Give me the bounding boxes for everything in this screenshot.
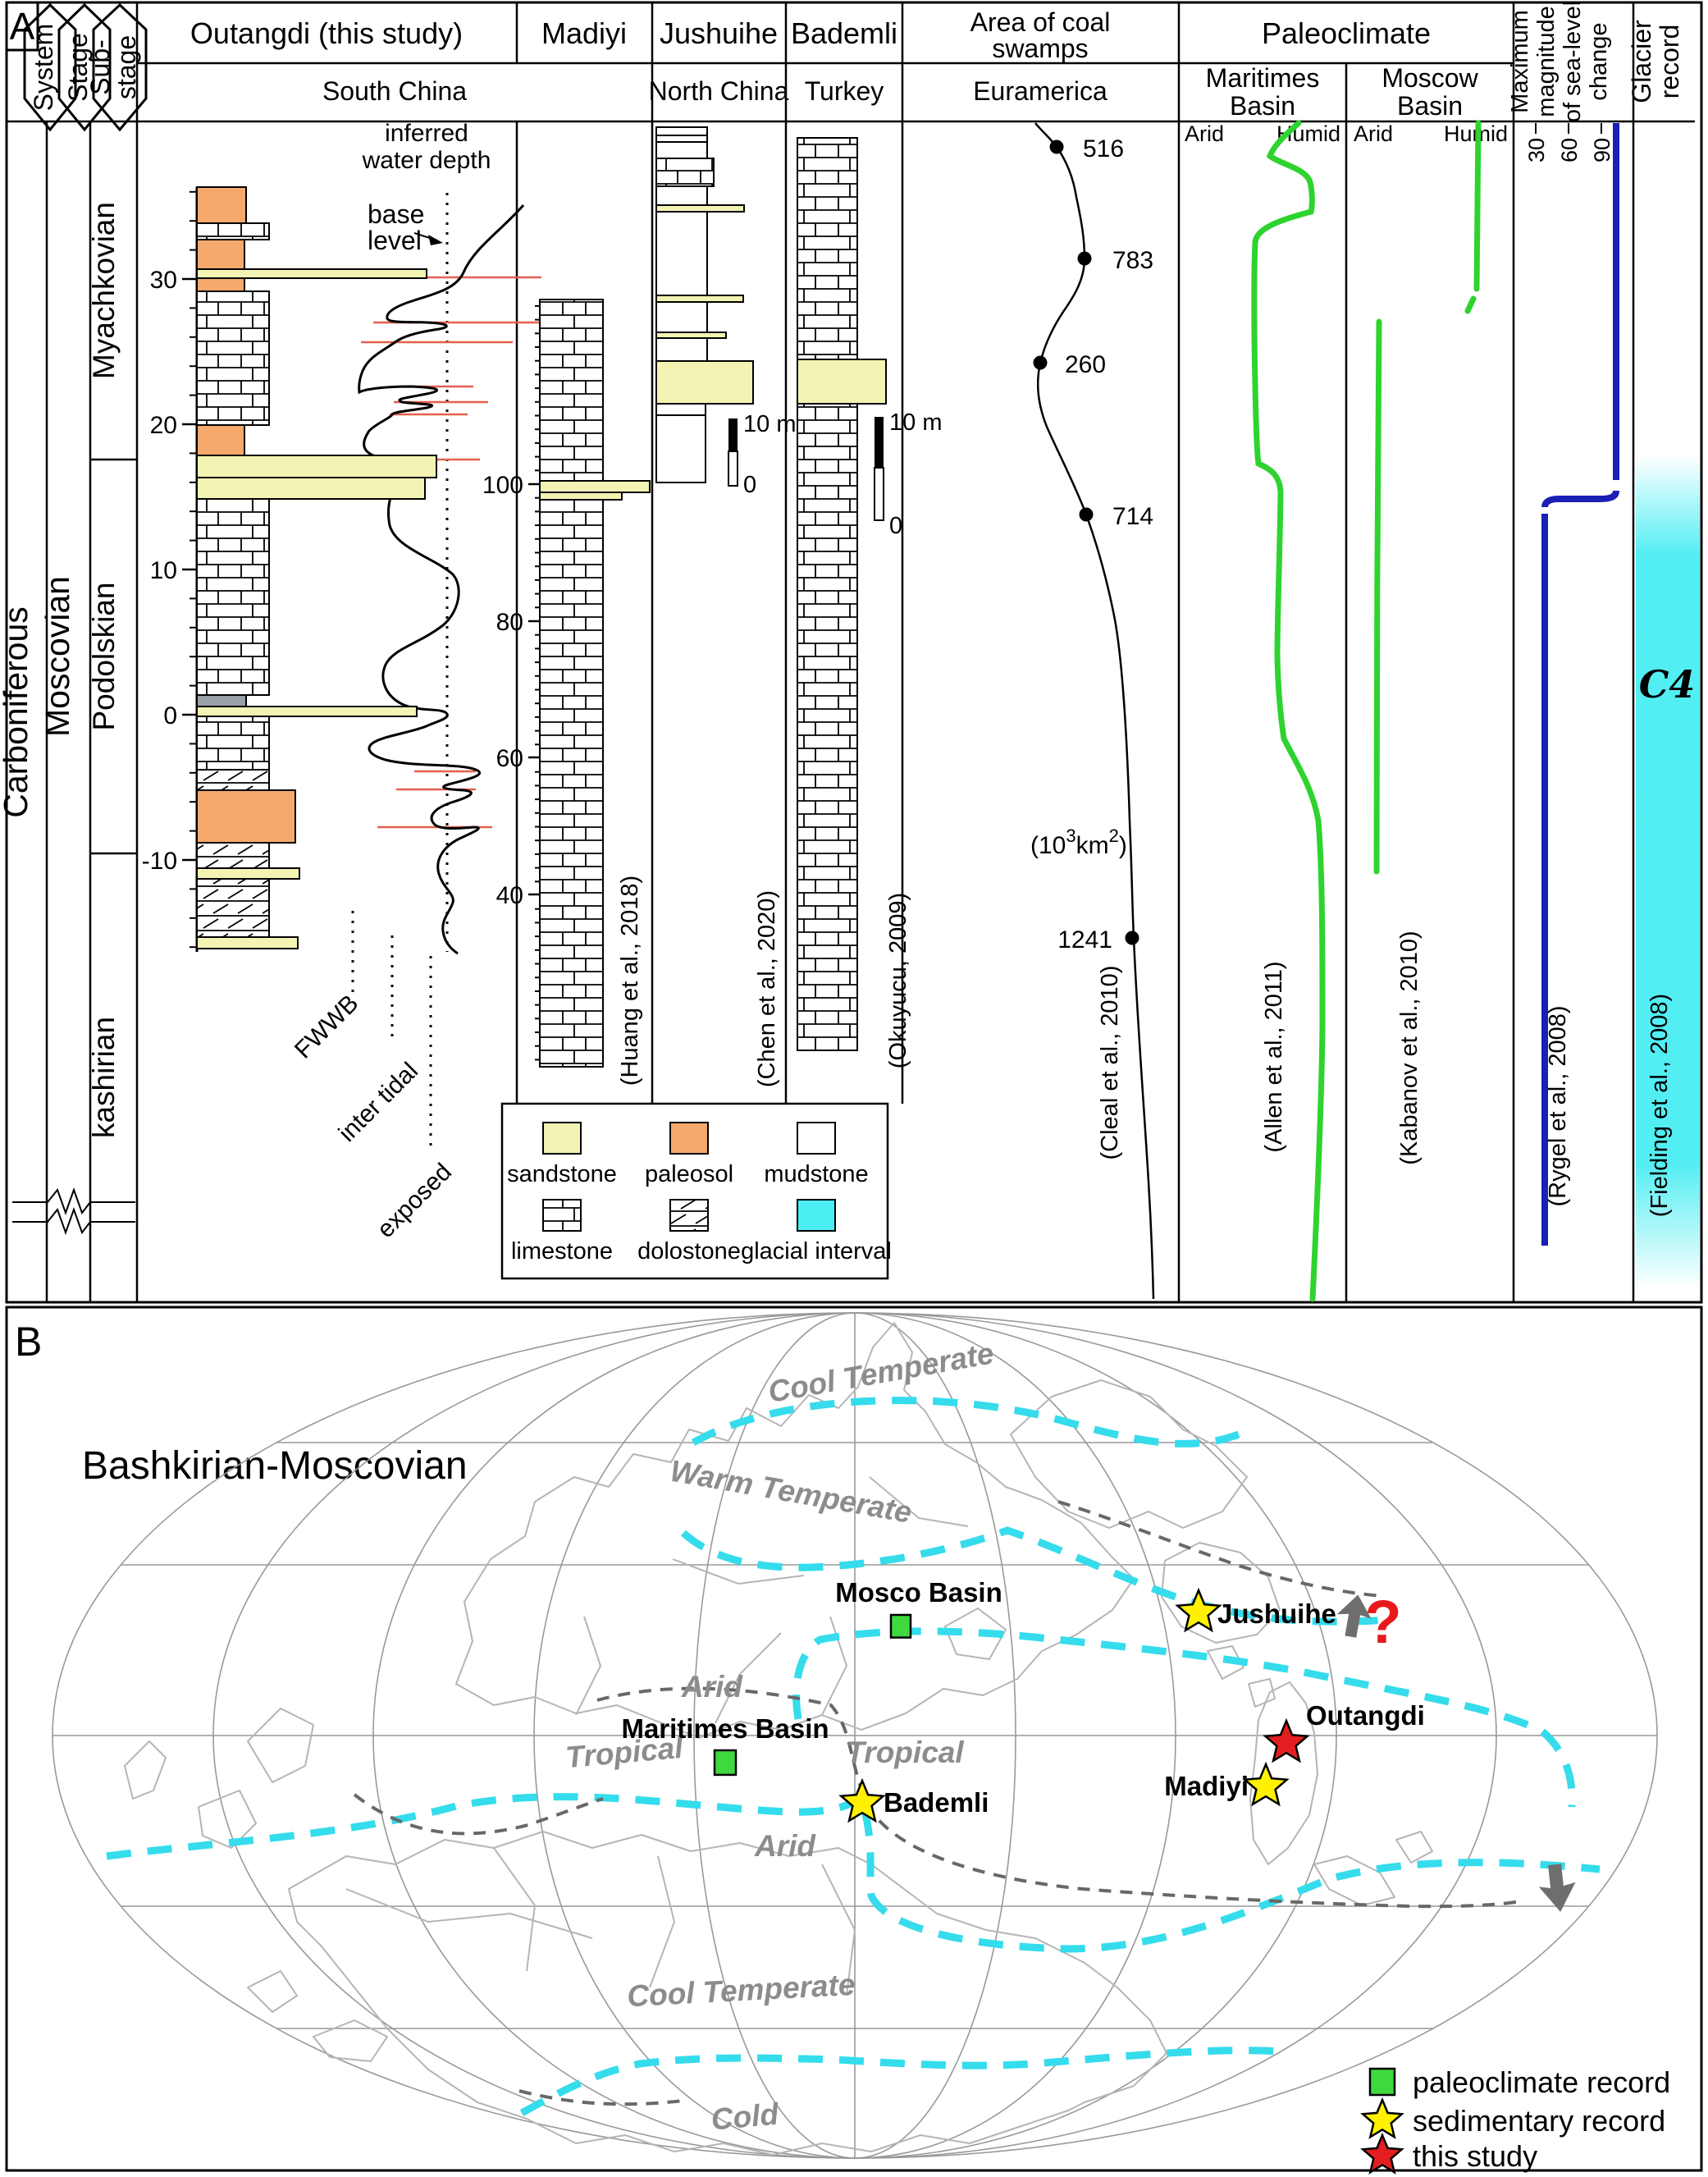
coal-data-label: 714 xyxy=(1112,503,1153,530)
madiyi-tick-label: 40 xyxy=(496,882,523,909)
jushuihe-title: Jushuihe xyxy=(660,16,778,50)
paleoclimate-record-marker xyxy=(891,1615,911,1638)
map-legend: paleoclimate recordsedimentary recordthi… xyxy=(1363,2065,1670,2173)
lith-unit-ps xyxy=(197,790,295,843)
myachkovian-label: Myachkovian xyxy=(87,202,121,379)
outangdi-tick-label: -10 xyxy=(142,848,177,875)
coal-data-point xyxy=(1034,356,1048,370)
legend-label: glacial interval xyxy=(741,1238,892,1265)
coal-data-point xyxy=(1050,140,1064,154)
outangdi-tick-label: 20 xyxy=(150,412,177,439)
sealevel-tick-label: 30 xyxy=(1524,138,1549,162)
climate-zone-label: Arid xyxy=(681,1670,743,1704)
moscow-basin-header-1: Moscow xyxy=(1381,63,1478,93)
lith-unit-ms xyxy=(656,142,707,158)
exposed-label: exposed xyxy=(372,1159,458,1244)
lith-unit-ps xyxy=(197,278,244,291)
sealevel-curve-step xyxy=(1545,491,1616,507)
south-china-label: South China xyxy=(322,76,467,106)
climate-zone-label: Cool Temperate xyxy=(626,1968,856,2014)
lith-unit-ls xyxy=(197,223,269,240)
sealevel-ticks: 306090 xyxy=(1524,123,1614,162)
lith-unit-ss xyxy=(197,707,417,716)
lith-unit-ss xyxy=(197,868,299,879)
lith-unit-ms xyxy=(656,338,707,361)
sealevel-tick-label: 60 xyxy=(1557,138,1582,162)
legend-sedimentary-star xyxy=(1363,2100,1402,2137)
lith-unit-ss xyxy=(540,492,622,500)
map-legend-label: paleoclimate record xyxy=(1413,2065,1670,2099)
this-study-star xyxy=(1265,1721,1307,1761)
coal-points: 5167832607141241 xyxy=(1034,135,1154,954)
legend-swatch-ms xyxy=(797,1123,835,1154)
bademli-scalebar: 10 m 0 xyxy=(875,409,942,539)
bademli-citation: (Okuyucu, 2009) xyxy=(885,893,911,1068)
lith-unit-ss xyxy=(197,455,436,478)
lith-unit-ss xyxy=(656,205,744,212)
madiyi-citation: (Huang et al., 2018) xyxy=(617,876,643,1086)
lith-unit-ms xyxy=(656,302,707,332)
coal-swamps-curve xyxy=(1035,123,1153,1299)
lith-unit-ss xyxy=(197,478,425,499)
climate-zone-label: Warm Temperate xyxy=(668,1454,915,1530)
moscow-climate-curve-upper xyxy=(1477,123,1478,289)
fwwb-label: FWWB xyxy=(290,990,363,1063)
outangdi-tick-label: 10 xyxy=(150,557,177,584)
map-site-label: Madiyi xyxy=(1164,1771,1249,1801)
paleoclimate-record-marker xyxy=(715,1750,736,1775)
axis-ribbons: System Stage Sub- stage xyxy=(25,5,146,130)
lith-unit-ls xyxy=(197,716,269,770)
inferred-water-depth-label-2: water depth xyxy=(362,147,491,174)
sealevel-header-1: Maximum xyxy=(1507,10,1533,113)
glacier-header-1: Glacier xyxy=(1627,20,1656,103)
intertidal-label: inter tidal xyxy=(334,1058,423,1147)
system-header: System xyxy=(29,24,58,112)
legend-swatch-ss xyxy=(543,1123,581,1154)
c4-glaciation-label: C4 xyxy=(1639,662,1696,707)
coal-title-1: Area of coal xyxy=(970,7,1111,37)
lith-unit-ls xyxy=(656,158,714,186)
question-mark-label: ? xyxy=(1364,1588,1401,1656)
lith-unit-ms xyxy=(656,212,707,295)
strat-bademli xyxy=(797,138,886,1050)
coal-data-label: 1241 xyxy=(1057,926,1112,954)
bademli-scalebar-bottom: 0 xyxy=(889,513,902,539)
lith-unit-ss xyxy=(656,295,743,302)
lith-unit-ms xyxy=(656,186,707,205)
podolskian-label: Podolskian xyxy=(87,582,121,730)
jushuihe-scalebar-bottom: 0 xyxy=(743,472,756,498)
map-legend-label: sedimentary record xyxy=(1413,2104,1665,2138)
map-site-label: Jushuihe xyxy=(1217,1598,1336,1629)
moscovian-label: Moscovian xyxy=(39,576,76,737)
map-site-label: Maritimes Basin xyxy=(621,1713,829,1744)
sealevel-header-4: change xyxy=(1586,22,1612,100)
kashirian-label: kashirian xyxy=(87,1017,121,1138)
map-site-label: Mosco Basin xyxy=(835,1577,1002,1608)
turkey-label: Turkey xyxy=(805,76,884,106)
lith-unit-ls xyxy=(197,499,269,695)
sealevel-header-3: of sea-level xyxy=(1560,1,1586,122)
lith-unit-ls xyxy=(197,291,269,425)
lith-unit-ps xyxy=(197,240,244,269)
section-break-icon xyxy=(12,1190,135,1233)
legend-label: sandstone xyxy=(507,1161,617,1187)
base-level-label-1: base xyxy=(368,199,424,229)
moscow-basin-header-2: Basin xyxy=(1397,91,1463,121)
jushuihe-citation: (Chen et al., 2020) xyxy=(754,890,780,1087)
paleoclimate-title: Paleoclimate xyxy=(1262,16,1431,50)
strat-outangdi xyxy=(197,187,436,949)
coal-data-point xyxy=(1126,931,1139,945)
lith-unit-ss xyxy=(540,481,650,492)
legend-paleoclimate-swatch xyxy=(1370,2069,1395,2095)
moscow-climate-curve-lower xyxy=(1377,322,1379,871)
figure-svg: A System Stage Sub- stage Outangdi (this… xyxy=(0,0,1708,2177)
map-site-label: Outangdi xyxy=(1306,1700,1425,1731)
legend-swatch-ls xyxy=(543,1200,581,1231)
coal-unit-label: (103km2) xyxy=(1030,826,1127,859)
lith-unit-ls xyxy=(540,300,603,481)
lith-unit-ss xyxy=(656,361,753,404)
map-site-label: Bademli xyxy=(884,1787,989,1818)
lith-unit-ms xyxy=(656,135,707,142)
lith-unit-do xyxy=(197,770,269,790)
coal-data-point xyxy=(1080,508,1094,522)
maritimes-basin-header-1: Maritimes xyxy=(1206,63,1320,93)
coal-data-label: 516 xyxy=(1083,135,1124,162)
bademli-scalebar-top: 10 m xyxy=(889,409,942,436)
substage-header-1: Sub- xyxy=(85,39,115,95)
sealevel-tick-label: 90 xyxy=(1590,138,1614,162)
maritimes-arid-label: Arid xyxy=(1185,121,1224,146)
maritimes-basin-header-2: Basin xyxy=(1230,91,1295,121)
carboniferous-label: Carboniferous xyxy=(0,606,34,818)
sealevel-header-2: magnitude xyxy=(1533,6,1560,117)
maritimes-citation: (Allen et al., 2011) xyxy=(1261,961,1287,1152)
lith-unit-ps xyxy=(197,425,244,455)
lith-unit-ms xyxy=(656,404,706,415)
climate-zone-label: Cold xyxy=(710,2097,781,2136)
jushuihe-scalebar-top: 10 m xyxy=(743,411,796,437)
climate-zone-label: Tropical xyxy=(846,1736,964,1769)
substage-header-2: stage xyxy=(112,35,141,99)
lith-unit-ls xyxy=(797,404,857,1050)
coal-data-label: 260 xyxy=(1065,351,1106,378)
lith-unit-do xyxy=(197,879,269,937)
lithology-legend-items: sandstonepaleosolmudstonelimestonedolost… xyxy=(507,1123,892,1265)
lith-unit-ss xyxy=(197,269,427,278)
madiyi-tick-label: 80 xyxy=(496,609,523,636)
water-depth-curve xyxy=(359,205,523,954)
outangdi-title: Outangdi (this study) xyxy=(190,16,463,50)
coal-title-2: swamps xyxy=(992,34,1088,63)
figure: A System Stage Sub- stage Outangdi (this… xyxy=(0,0,1708,2177)
strat-jushuihe xyxy=(656,127,753,483)
lith-unit-ls xyxy=(540,500,603,1067)
climate-zone-label: Arid xyxy=(754,1829,816,1863)
lith-unit-gy xyxy=(197,695,246,707)
legend-swatch-ps xyxy=(670,1123,708,1154)
legend-label: paleosol xyxy=(645,1161,733,1187)
lith-unit-ls xyxy=(797,138,857,359)
lith-unit-ps xyxy=(197,187,246,223)
panel-b-title: Bashkirian-Moscovian xyxy=(82,1444,468,1488)
lith-unit-ss xyxy=(197,937,298,949)
inferred-water-depth-label-1: inferred xyxy=(385,120,468,147)
lith-unit-ms xyxy=(656,415,706,483)
legend-swatch-gl xyxy=(797,1200,835,1231)
glacier-citation: (Fielding et al., 2008) xyxy=(1646,994,1673,1217)
moscow-citation: (Kabanov et al., 2010) xyxy=(1396,931,1423,1164)
sedimentary-record-star xyxy=(1177,1590,1219,1630)
outangdi-ruler: 3020100-10 xyxy=(142,187,197,952)
bademli-title: Bademli xyxy=(791,16,897,50)
moscow-climate-curve-dash xyxy=(1468,299,1473,311)
legend-label: mudstone xyxy=(764,1161,868,1187)
lith-unit-ss xyxy=(656,332,726,338)
base-level-label-2: level xyxy=(368,226,422,255)
legend-label: dolostone xyxy=(637,1238,741,1265)
panel-b-label: B xyxy=(15,1319,42,1365)
map-legend-label: this study xyxy=(1413,2139,1537,2173)
glacier-header-2: record xyxy=(1655,25,1684,99)
legend-label: limestone xyxy=(511,1238,613,1265)
euramerica-label: Euramerica xyxy=(973,76,1107,106)
coal-citation: (Cleal et al., 2010) xyxy=(1097,966,1123,1160)
madiyi-tick-label: 60 xyxy=(496,745,523,772)
outangdi-tick-label: 30 xyxy=(150,267,177,294)
madiyi-title: Madiyi xyxy=(541,16,627,50)
coal-data-label: 783 xyxy=(1112,247,1153,274)
climate-zone-label: Cool Temperate xyxy=(765,1336,996,1409)
outangdi-tick-label: 0 xyxy=(163,702,177,729)
madiyi-ruler: 100806040 xyxy=(482,300,541,1067)
lith-unit-ss xyxy=(797,359,886,404)
sealevel-citation: (Rygel et al., 2008) xyxy=(1545,1005,1571,1206)
north-china-label: North China xyxy=(649,76,789,106)
moscow-arid-label: Arid xyxy=(1354,121,1393,146)
base-level-arrowhead xyxy=(428,235,443,245)
lith-unit-ms xyxy=(656,127,707,135)
madiyi-tick-label: 100 xyxy=(482,472,523,499)
lith-unit-do xyxy=(197,843,269,868)
coal-data-point xyxy=(1078,252,1092,266)
legend-this-study-star xyxy=(1363,2135,1402,2172)
legend-swatch-do xyxy=(670,1200,708,1231)
